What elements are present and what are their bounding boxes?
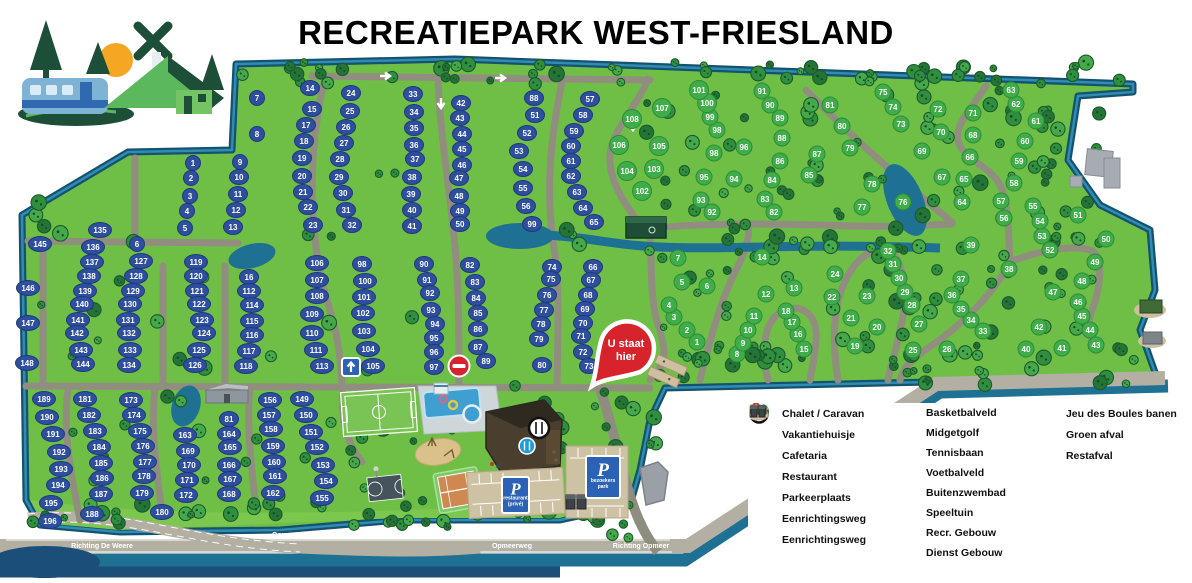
plot-badge-chalet-85: 85 [469, 306, 488, 321]
plot-badge-chalet-196: 196 [39, 514, 62, 529]
svg-text:80: 80 [538, 361, 547, 370]
svg-text:46: 46 [1074, 298, 1083, 307]
svg-text:73: 73 [585, 362, 594, 371]
svg-text:189: 189 [37, 395, 51, 404]
plot-badge-huisje-101: 101 [690, 81, 709, 100]
svg-text:29: 29 [901, 288, 910, 297]
no-entry-icon [748, 530, 774, 549]
svg-text:59: 59 [1015, 157, 1024, 166]
svg-text:58: 58 [579, 111, 588, 120]
svg-text:6: 6 [135, 240, 140, 249]
plot-badge-chalet-1: 1 [186, 156, 201, 171]
pool-small [464, 406, 481, 423]
plot-badge-chalet-88: 88 [525, 91, 544, 106]
road-spine[interactable] [26, 386, 650, 388]
svg-text:14: 14 [306, 84, 315, 93]
plot-badge-chalet-156: 156 [259, 393, 282, 408]
plot-badge-chalet-7: 7 [250, 91, 265, 106]
svg-text:15: 15 [308, 105, 317, 114]
plot-badge-huisje-105: 105 [650, 137, 669, 156]
svg-text:191: 191 [46, 430, 60, 439]
plot-badge-huisje-24: 24 [827, 266, 843, 282]
svg-text:5: 5 [183, 224, 188, 233]
plot-badge-chalet-64: 64 [574, 201, 593, 216]
svg-text:138: 138 [82, 272, 96, 281]
plot-badge-chalet-103: 103 [353, 324, 376, 339]
svg-text:52: 52 [523, 129, 532, 138]
svg-text:11: 11 [234, 190, 243, 199]
svg-text:149: 149 [295, 395, 309, 404]
plot-badge-chalet-105: 105 [362, 359, 385, 374]
legend-label: Midgetgolf [926, 427, 979, 439]
plot-badge-huisje-65: 65 [956, 171, 972, 187]
football-field [341, 387, 418, 436]
svg-text:7: 7 [676, 254, 681, 263]
svg-text:35: 35 [410, 124, 419, 133]
svg-text:1: 1 [695, 338, 700, 347]
svg-text:14: 14 [758, 253, 767, 262]
plot-badge-huisje-93: 93 [693, 192, 709, 208]
plot-badge-chalet-99: 99 [523, 217, 542, 232]
plot-badge-chalet-30: 30 [334, 186, 353, 201]
road-label-0: Richting De Weere [71, 543, 133, 550]
plot-badge-chalet-186: 186 [91, 471, 114, 486]
plot-badge-chalet-195: 195 [40, 496, 63, 511]
plot-badge-chalet-154: 154 [315, 474, 338, 489]
svg-text:19: 19 [851, 342, 860, 351]
plot-badge-chalet-171: 171 [176, 473, 199, 488]
svg-text:24: 24 [831, 270, 840, 279]
plot-badge-huisje-60: 60 [1017, 133, 1033, 149]
svg-text:25: 25 [909, 346, 918, 355]
svg-text:134: 134 [122, 361, 136, 370]
plot-badge-chalet-10: 10 [230, 170, 249, 185]
plot-badge-chalet-167: 167 [219, 472, 242, 487]
plot-badge-chalet-2: 2 [184, 171, 199, 186]
svg-text:90: 90 [420, 260, 429, 269]
plot-badge-chalet-115: 115 [241, 314, 264, 329]
plot-badge-huisje-6: 6 [699, 278, 715, 294]
svg-text:153: 153 [316, 461, 330, 470]
oneway-sign [342, 358, 360, 376]
svg-text:40: 40 [1022, 345, 1031, 354]
svg-text:101: 101 [692, 86, 706, 95]
svg-text:34: 34 [967, 316, 976, 325]
svg-text:119: 119 [190, 258, 203, 267]
plot-badge-huisje-25: 25 [905, 342, 921, 358]
plot-badge-chalet-180: 180 [151, 505, 174, 520]
svg-text:20: 20 [298, 172, 307, 181]
plot-badge-huisje-57: 57 [993, 193, 1009, 209]
svg-text:22: 22 [304, 203, 313, 212]
svg-text:42: 42 [457, 99, 466, 108]
svg-text:173: 173 [124, 396, 138, 405]
svg-text:151: 151 [304, 428, 318, 437]
svg-text:87: 87 [813, 150, 822, 159]
svg-text:76: 76 [543, 291, 552, 300]
svg-text:104: 104 [620, 167, 634, 176]
road-label-3: De Dreef [546, 531, 575, 538]
plot-badge-chalet-16: 16 [240, 270, 259, 285]
svg-text:1: 1 [191, 159, 196, 168]
svg-text:132: 132 [122, 329, 136, 338]
svg-text:72: 72 [579, 348, 588, 357]
svg-text:133: 133 [123, 346, 137, 355]
svg-text:192: 192 [52, 448, 66, 457]
plot-badge-chalet-13: 13 [224, 220, 243, 235]
svg-text:76: 76 [899, 198, 908, 207]
plot-badge-chalet-175: 175 [129, 424, 152, 439]
legend-item-voetbalveld: Voetbalveld [892, 463, 1006, 483]
plot-badge-chalet-100: 100 [354, 274, 377, 289]
plot-badge-huisje-63: 63 [1003, 82, 1019, 98]
plot-badge-huisje-11: 11 [746, 308, 762, 324]
plot-badge-huisje-70: 70 [933, 124, 949, 140]
svg-text:117: 117 [243, 347, 256, 356]
plot-badge-chalet-77: 77 [535, 303, 554, 318]
plot-badge-chalet-124: 124 [193, 326, 216, 341]
svg-text:23: 23 [863, 292, 872, 301]
plot-badge-chalet-34: 34 [405, 105, 424, 120]
svg-text:180: 180 [155, 508, 169, 517]
svg-text:66: 66 [966, 153, 975, 162]
plot-badge-chalet-95: 95 [425, 331, 444, 346]
svg-text:122: 122 [192, 300, 206, 309]
plot-badge-chalet-3: 3 [183, 189, 198, 204]
svg-text:160: 160 [267, 458, 281, 467]
building-dienst-icon [892, 544, 918, 563]
svg-text:77: 77 [858, 203, 867, 212]
plot-badge-huisje-36: 36 [944, 287, 960, 303]
svg-text:23: 23 [309, 221, 318, 230]
svg-text:48: 48 [1078, 277, 1087, 286]
svg-text:69: 69 [581, 305, 590, 314]
svg-text:63: 63 [573, 188, 582, 197]
plot-badge-chalet-183: 183 [84, 424, 107, 439]
oneway-arrow-icon [748, 509, 774, 528]
plot-badge-huisje-22: 22 [824, 289, 840, 305]
svg-text:87: 87 [474, 343, 483, 352]
plot-badge-huisje-18: 18 [778, 303, 794, 319]
svg-text:142: 142 [70, 329, 84, 338]
svg-text:105: 105 [366, 362, 380, 371]
plot-badge-chalet-111: 111 [305, 343, 328, 358]
svg-text:126: 126 [188, 361, 202, 370]
plot-badge-chalet-161: 161 [264, 469, 287, 484]
plot-badge-chalet-60: 60 [562, 139, 581, 154]
plot-badge-chalet-122: 122 [188, 297, 211, 312]
plot-badge-chalet-98: 98 [353, 257, 372, 272]
plot-badge-chalet-20: 20 [293, 169, 312, 184]
plot-badge-huisje-12: 12 [758, 286, 774, 302]
svg-text:188: 188 [85, 510, 99, 519]
svg-text:99: 99 [528, 220, 537, 229]
svg-text:44: 44 [1086, 326, 1095, 335]
plot-badge-huisje-88: 88 [774, 130, 790, 146]
svg-text:167: 167 [223, 475, 237, 484]
svg-text:135: 135 [93, 226, 107, 235]
svg-text:100: 100 [358, 277, 372, 286]
svg-text:33: 33 [409, 90, 418, 99]
road-top[interactable] [312, 76, 650, 80]
plot-badge-chalet-137: 137 [81, 255, 104, 270]
svg-text:55: 55 [1029, 202, 1038, 211]
svg-text:43: 43 [456, 114, 465, 123]
svg-text:103: 103 [647, 165, 661, 174]
svg-text:60: 60 [567, 142, 576, 151]
svg-text:3: 3 [672, 313, 677, 322]
svg-text:155: 155 [315, 494, 329, 503]
legend-item-dienst-gebouw: Dienst Gebouw [892, 543, 1006, 563]
svg-text:10: 10 [744, 326, 753, 335]
svg-text:60: 60 [1021, 137, 1030, 146]
plot-badge-chalet-59: 59 [565, 124, 584, 139]
plot-badge-huisje-49: 49 [1087, 254, 1103, 270]
svg-text:140: 140 [75, 300, 89, 309]
plot-badge-huisje-64: 64 [954, 194, 970, 210]
legend-item-midgetgolf: Midgetgolf [892, 423, 1006, 443]
plot-badge-chalet-97: 97 [425, 360, 444, 375]
plot-badge-chalet-140: 140 [71, 297, 94, 312]
svg-text:(privé): (privé) [508, 502, 524, 508]
plot-badge-chalet-159: 159 [262, 439, 285, 454]
svg-text:88: 88 [530, 94, 539, 103]
plot-badge-huisje-81: 81 [822, 97, 838, 113]
plot-badge-chalet-130: 130 [119, 297, 142, 312]
plot-badge-chalet-62: 62 [562, 169, 581, 184]
plot-badge-chalet-136: 136 [82, 240, 105, 255]
parking-sign-1: Pbezoekerspark [586, 456, 620, 498]
legend-label: Eenrichtingsweg [782, 513, 866, 525]
plot-badge-chalet-43: 43 [451, 111, 470, 126]
svg-text:70: 70 [937, 128, 946, 137]
plot-badge-chalet-112: 112 [238, 284, 261, 299]
svg-text:95: 95 [430, 334, 439, 343]
plot-badge-huisje-67: 67 [934, 169, 950, 185]
svg-text:107: 107 [310, 276, 324, 285]
legend-item-eenrichtingsweg: Eenrichtingsweg [748, 508, 866, 529]
svg-text:147: 147 [21, 319, 35, 328]
plot-badge-chalet-194: 194 [47, 478, 70, 493]
svg-text:37: 37 [957, 275, 966, 284]
svg-text:18: 18 [782, 307, 791, 316]
svg-text:22: 22 [828, 293, 837, 302]
svg-text:11: 11 [750, 312, 759, 321]
plot-badge-chalet-46: 46 [453, 158, 472, 173]
plot-badge-huisje-47: 47 [1045, 284, 1061, 300]
legend-label: Parkeerplaats [782, 492, 851, 504]
svg-text:120: 120 [189, 272, 203, 281]
svg-text:84: 84 [768, 176, 777, 185]
svg-text:154: 154 [319, 477, 333, 486]
plot-badge-chalet-65: 65 [585, 215, 604, 230]
plot-badge-chalet-79: 79 [530, 332, 549, 347]
plot-badge-chalet-86: 86 [469, 322, 488, 337]
plot-badge-huisje-83: 83 [757, 191, 773, 207]
svg-text:150: 150 [299, 411, 313, 420]
plot-badge-chalet-8: 8 [250, 127, 265, 142]
plot-badge-chalet-12: 12 [227, 203, 246, 218]
plot-badge-chalet-190: 190 [36, 410, 59, 425]
svg-text:110: 110 [306, 329, 319, 338]
legend-item-vakantiehuisje: 11Vakantiehuisje [748, 424, 866, 445]
svg-text:46: 46 [458, 161, 467, 170]
svg-text:93: 93 [427, 306, 436, 315]
no-entry-sign [449, 356, 470, 377]
svg-text:157: 157 [262, 411, 276, 420]
legend-label: Chalet / Caravan [782, 408, 864, 420]
svg-text:67: 67 [938, 173, 947, 182]
svg-text:83: 83 [471, 278, 480, 287]
svg-text:63: 63 [1007, 86, 1016, 95]
plot-badge-chalet-149: 149 [291, 392, 314, 407]
svg-text:141: 141 [71, 316, 85, 325]
plot-badge-chalet-110: 110 [301, 326, 324, 341]
plot-badge-chalet-151: 151 [300, 425, 323, 440]
plot-badge-huisje-50: 50 [1098, 231, 1114, 247]
plot-badge-chalet-162: 162 [262, 486, 285, 501]
plot-badge-huisje-27: 27 [911, 316, 927, 332]
you-are-here-line2: hier [616, 351, 637, 363]
svg-text:123: 123 [195, 316, 209, 325]
plot-badge-chalet-146: 146 [17, 281, 40, 296]
plot-badge-huisje-85: 85 [801, 167, 817, 183]
svg-text:35: 35 [957, 305, 966, 314]
svg-text:72: 72 [934, 105, 943, 114]
svg-text:124: 124 [197, 329, 211, 338]
svg-text:196: 196 [43, 517, 57, 526]
plot-badge-chalet-127: 127 [130, 254, 153, 269]
plot-badge-chalet-184: 184 [88, 440, 111, 455]
svg-text:162: 162 [266, 489, 280, 498]
svg-text:97: 97 [430, 363, 439, 372]
plot-badge-chalet-75: 75 [542, 272, 561, 287]
plot-badge-huisje-108: 108 [623, 110, 642, 129]
page-title: RECREATIEPARK WEST-FRIESLAND [0, 14, 1192, 52]
svg-text:61: 61 [1032, 117, 1041, 126]
road-label-1: Opmeerweg [272, 532, 312, 539]
svg-text:56: 56 [1000, 214, 1009, 223]
plot-badge-chalet-135: 135 [89, 223, 112, 238]
svg-text:96: 96 [430, 348, 439, 357]
svg-text:5: 5 [680, 278, 685, 287]
svg-text:10: 10 [235, 173, 244, 182]
plot-badge-chalet-177: 177 [134, 455, 157, 470]
plot-badge-huisje-77: 77 [854, 199, 870, 215]
svg-text:95: 95 [700, 173, 709, 182]
svg-text:45: 45 [458, 145, 467, 154]
plot-badge-huisje-53: 53 [1034, 228, 1050, 244]
plot-badge-chalet-179: 179 [131, 486, 154, 501]
plot-badge-huisje-59: 59 [1011, 153, 1027, 169]
plot-badge-chalet-169: 169 [177, 444, 200, 459]
svg-text:36: 36 [948, 291, 957, 300]
svg-text:68: 68 [584, 291, 593, 300]
svg-text:106: 106 [310, 259, 324, 268]
svg-text:28: 28 [336, 155, 345, 164]
plot-badge-chalet-166: 166 [218, 458, 241, 473]
plot-badge-chalet-53: 53 [510, 144, 529, 159]
svg-text:94: 94 [431, 320, 440, 329]
plot-badge-huisje-14: 14 [754, 249, 770, 265]
svg-text:106: 106 [612, 141, 626, 150]
plot-badge-chalet-22: 22 [299, 200, 318, 215]
svg-text:56: 56 [522, 202, 531, 211]
plot-badge-chalet-17: 17 [297, 118, 316, 133]
svg-text:41: 41 [408, 222, 417, 231]
plot-badge-chalet-47: 47 [450, 171, 469, 186]
svg-text:118: 118 [240, 362, 253, 371]
legend-label: Jeu des Boules banen [1066, 408, 1177, 420]
svg-text:40: 40 [408, 206, 417, 215]
svg-text:58: 58 [1010, 179, 1019, 188]
svg-text:26: 26 [943, 345, 952, 354]
svg-text:54: 54 [1036, 217, 1045, 226]
plot-badge-chalet-158: 158 [260, 422, 283, 437]
plot-badge-chalet-113: 113 [311, 359, 334, 374]
svg-text:91: 91 [758, 87, 767, 96]
plot-badge-chalet-143: 143 [70, 343, 93, 358]
midgetgolf-icon [892, 424, 918, 443]
svg-text:31: 31 [889, 260, 898, 269]
plot-badge-chalet-128: 128 [125, 269, 148, 284]
svg-text:181: 181 [78, 395, 92, 404]
plot-badge-chalet-9: 9 [233, 155, 248, 170]
plot-badge-chalet-119: 119 [185, 255, 208, 270]
svg-text:49: 49 [456, 207, 465, 216]
plot-badge-huisje-35: 35 [953, 301, 969, 317]
plot-badge-chalet-51: 51 [526, 108, 545, 123]
svg-text:170: 170 [182, 461, 196, 470]
plot-badge-huisje-73: 73 [893, 116, 909, 132]
legend-label: Recr. Gebouw [926, 527, 996, 539]
plot-badge-chalet-68: 68 [579, 288, 598, 303]
svg-text:105: 105 [652, 142, 666, 151]
svg-text:38: 38 [408, 173, 417, 182]
svg-text:26: 26 [342, 123, 351, 132]
svg-text:81: 81 [225, 415, 234, 424]
legend-item-buitenzwembad: Buitenzwembad [892, 483, 1006, 503]
svg-text:128: 128 [129, 272, 143, 281]
svg-text:101: 101 [357, 293, 371, 302]
plot-badge-chalet-144: 144 [72, 357, 95, 372]
plot-badge-chalet-50: 50 [451, 217, 470, 232]
pool-icon [892, 484, 918, 503]
svg-text:68: 68 [969, 131, 978, 140]
legend-item-recr-gebouw: Recr. Gebouw [892, 523, 1006, 543]
svg-text:93: 93 [697, 196, 706, 205]
svg-text:92: 92 [426, 289, 435, 298]
svg-text:12: 12 [232, 206, 241, 215]
svg-text:80: 80 [838, 122, 847, 131]
plot-badge-huisje-91: 91 [754, 83, 770, 99]
plot-badge-huisje-2: 2 [679, 322, 695, 338]
svg-text:178: 178 [137, 472, 151, 481]
plot-badge-chalet-91: 91 [418, 273, 437, 288]
plot-badge-chalet-187: 187 [90, 487, 113, 502]
svg-text:161: 161 [268, 472, 282, 481]
plot-badge-chalet-11: 11 [229, 187, 248, 202]
svg-text:164: 164 [222, 430, 236, 439]
plot-badge-huisje-86: 86 [772, 153, 788, 169]
svg-text:21: 21 [299, 188, 308, 197]
playground-icon [892, 504, 918, 523]
plot-badge-huisje-7: 7 [670, 250, 686, 266]
svg-text:183: 183 [88, 427, 102, 436]
plot-badge-huisje-74: 74 [885, 99, 901, 115]
restaurant-icon [748, 467, 774, 486]
plot-badge-huisje-39: 39 [963, 237, 979, 253]
